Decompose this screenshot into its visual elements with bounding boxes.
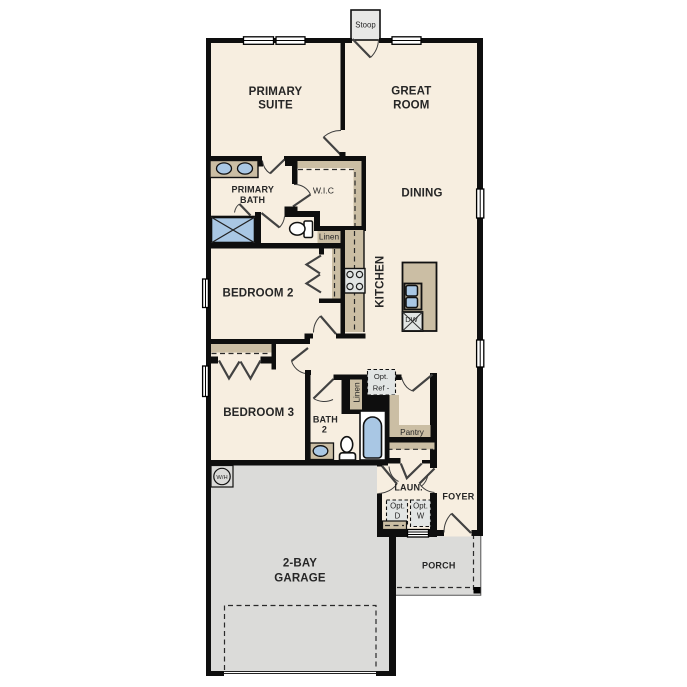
svg-text:ROOM: ROOM bbox=[393, 99, 429, 111]
svg-text:BATH: BATH bbox=[313, 414, 338, 424]
svg-text:PRIMARY: PRIMARY bbox=[232, 185, 275, 195]
svg-text:W/H: W/H bbox=[216, 475, 227, 481]
svg-text:PORCH: PORCH bbox=[422, 561, 456, 571]
svg-text:Ref -: Ref - bbox=[373, 383, 390, 392]
svg-text:Opt.: Opt. bbox=[374, 372, 388, 381]
svg-text:GREAT: GREAT bbox=[391, 86, 431, 98]
svg-text:GARAGE: GARAGE bbox=[274, 573, 326, 585]
svg-text:BEDROOM 2: BEDROOM 2 bbox=[223, 288, 294, 300]
svg-text:2: 2 bbox=[322, 424, 327, 434]
svg-text:Linen: Linen bbox=[319, 231, 340, 241]
svg-text:Opt.: Opt. bbox=[390, 502, 405, 511]
svg-text:Stoop: Stoop bbox=[355, 21, 376, 30]
svg-text:PRIMARY: PRIMARY bbox=[249, 86, 303, 98]
svg-text:DW: DW bbox=[405, 315, 418, 324]
svg-text:Linen: Linen bbox=[352, 382, 362, 403]
svg-text:DINING: DINING bbox=[401, 188, 442, 200]
svg-text:W: W bbox=[417, 512, 425, 521]
svg-text:D: D bbox=[395, 512, 401, 521]
svg-text:LAUN.: LAUN. bbox=[394, 483, 423, 493]
svg-text:W.I.C: W.I.C bbox=[313, 185, 334, 195]
svg-text:FOYER: FOYER bbox=[442, 492, 474, 502]
svg-text:BEDROOM 3: BEDROOM 3 bbox=[223, 407, 294, 419]
svg-text:Opt.: Opt. bbox=[413, 502, 428, 511]
svg-text:SUITE: SUITE bbox=[258, 100, 293, 112]
svg-text:KITCHEN: KITCHEN bbox=[374, 256, 386, 308]
svg-text:Pantry: Pantry bbox=[400, 428, 425, 437]
svg-text:2-BAY: 2-BAY bbox=[283, 558, 317, 570]
svg-text:BATH: BATH bbox=[240, 195, 265, 205]
